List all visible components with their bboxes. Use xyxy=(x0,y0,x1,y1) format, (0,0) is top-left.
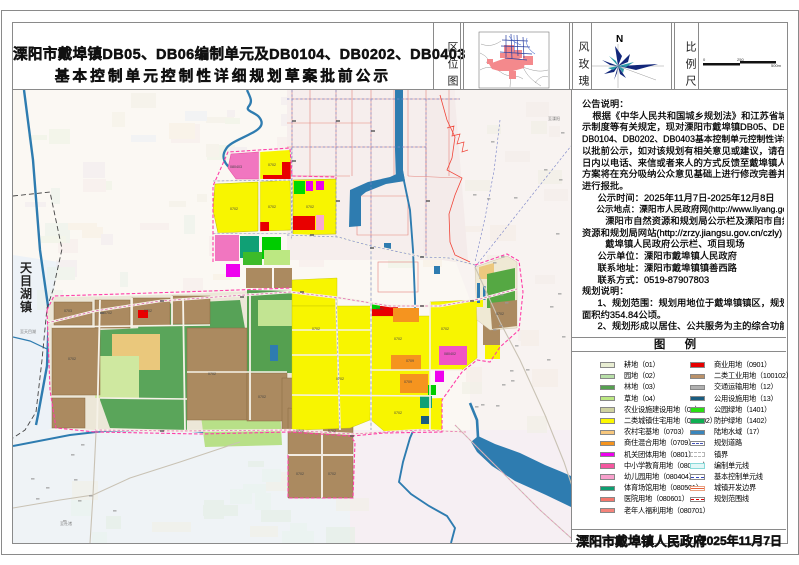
svg-text:0702: 0702 xyxy=(394,411,402,415)
svg-text:0702: 0702 xyxy=(230,207,238,211)
svg-text:湖: 湖 xyxy=(20,286,32,301)
svg-text:0702: 0702 xyxy=(296,429,304,433)
svg-text:0901: 0901 xyxy=(376,307,384,311)
svg-text:N: N xyxy=(616,34,623,45)
svg-text:0702: 0702 xyxy=(104,311,112,315)
svg-text:0702: 0702 xyxy=(328,472,336,476)
svg-text:镇: 镇 xyxy=(20,299,32,314)
svg-text:0702: 0702 xyxy=(144,309,152,313)
svg-text:0702: 0702 xyxy=(312,327,320,331)
svg-text:0703: 0703 xyxy=(64,309,72,313)
svg-text:至天目湖: 至天目湖 xyxy=(20,328,36,334)
svg-text:0: 0 xyxy=(703,57,706,62)
svg-text:0702: 0702 xyxy=(208,372,216,376)
svg-text:至溧阳: 至溧阳 xyxy=(548,115,560,121)
svg-text:0709: 0709 xyxy=(406,359,414,363)
svg-text:0702: 0702 xyxy=(268,205,276,209)
svg-text:080402: 080402 xyxy=(444,352,456,356)
svg-text:0702: 0702 xyxy=(306,205,314,209)
svg-text:0702: 0702 xyxy=(258,395,266,399)
svg-text:0702: 0702 xyxy=(496,312,504,316)
svg-text:500m: 500m xyxy=(771,63,782,68)
svg-text:天: 天 xyxy=(20,261,33,275)
svg-text:0702: 0702 xyxy=(328,429,336,433)
svg-text:080403: 080403 xyxy=(230,165,242,169)
svg-text:0702: 0702 xyxy=(296,472,304,476)
svg-text:0709: 0709 xyxy=(404,380,412,384)
svg-text:目: 目 xyxy=(20,274,32,288)
svg-text:0702: 0702 xyxy=(336,377,344,381)
svg-text:0702: 0702 xyxy=(68,357,76,361)
svg-text:0702: 0702 xyxy=(441,327,449,331)
svg-text:0702: 0702 xyxy=(394,337,402,341)
svg-text:0702: 0702 xyxy=(268,163,276,167)
